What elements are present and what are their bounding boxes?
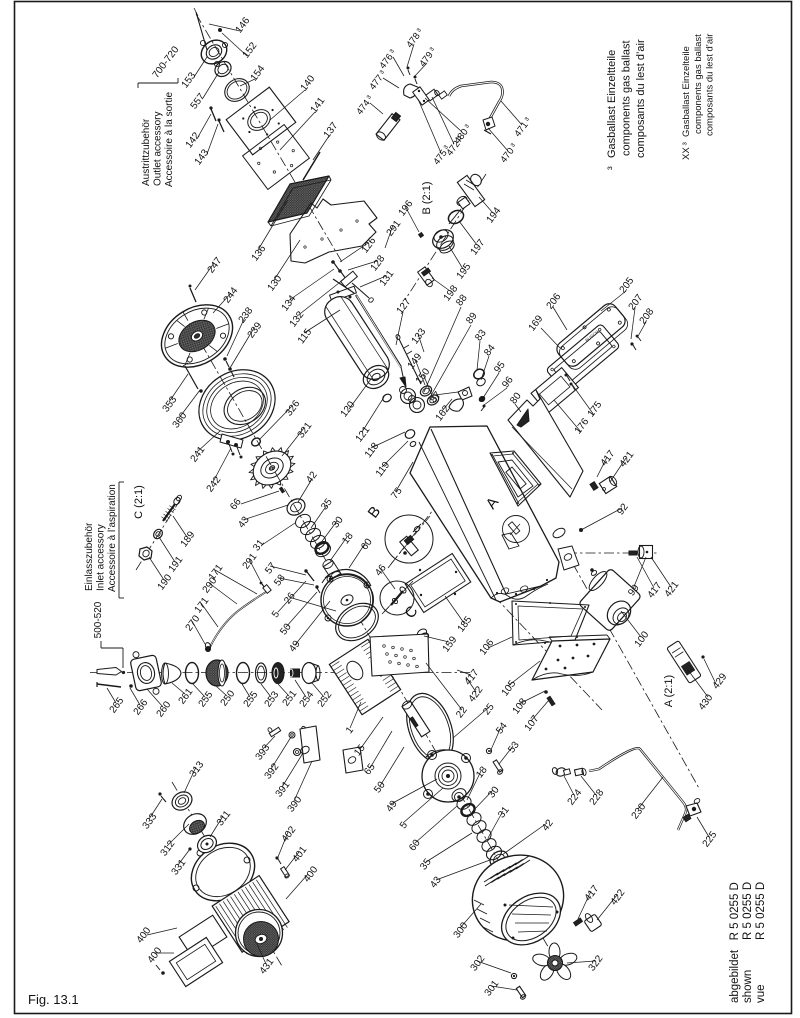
svg-text:³ Gasballast Einzeltteile: ³ Gasballast Einzeltteile (606, 50, 618, 170)
svg-text:A (2:1): A (2:1) (663, 675, 675, 707)
svg-text:Outlet accessory: Outlet accessory (153, 112, 164, 186)
svg-text:composants du lest d’air: composants du lest d’air (635, 39, 647, 158)
svg-text:shown: shown (742, 970, 754, 1003)
svg-text:R 5 0255 D: R 5 0255 D (742, 882, 754, 940)
svg-text:500-520: 500-520 (93, 601, 104, 638)
svg-text:Inlet accessory: Inlet accessory (96, 524, 107, 591)
svg-text:Accessoire à la sortie: Accessoire à la sortie (164, 92, 175, 187)
svg-text:composants du lest d’air: composants du lest d’air (705, 34, 716, 136)
svg-text:XX ³ Gasballast Einzelteile: XX ³ Gasballast Einzelteile (681, 46, 692, 160)
svg-text:Fig. 13.1: Fig. 13.1 (28, 992, 79, 1007)
svg-text:B (2:1): B (2:1) (421, 181, 433, 214)
svg-text:components gas ballast: components gas ballast (621, 40, 633, 156)
svg-text:abgebildet R 5 0255 D: abgebildet R 5 0255 D (729, 882, 741, 1003)
svg-text:Einlasszubehör: Einlasszubehör (84, 522, 95, 591)
svg-text:vue: vue (755, 984, 767, 1003)
svg-text:components gas ballast: components gas ballast (693, 34, 704, 134)
svg-text:Accessoire à l’aspiration: Accessoire à l’aspiration (107, 484, 118, 592)
svg-text:R 5 0255 D: R 5 0255 D (755, 882, 767, 940)
svg-text:C (2:1): C (2:1) (133, 485, 145, 519)
svg-text:Austrittzubehör: Austrittzubehör (141, 118, 152, 186)
